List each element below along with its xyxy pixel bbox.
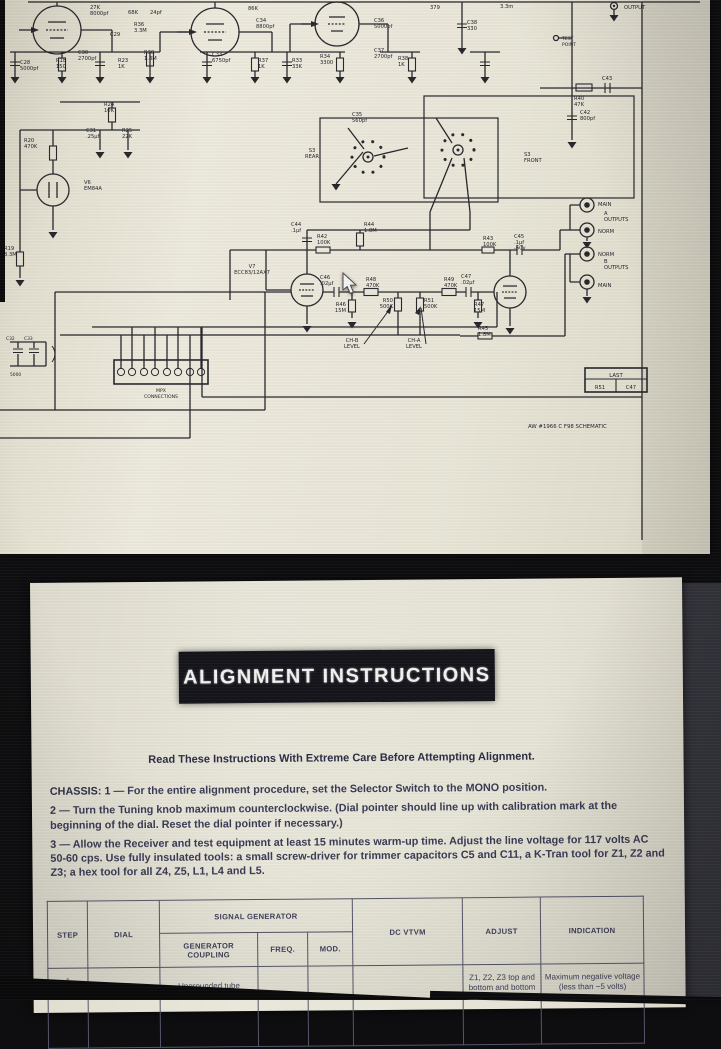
paragraph-lead: CHASSIS: 1 — (50, 785, 125, 798)
svg-text:AOUTPUTS: AOUTPUTS (604, 211, 628, 223)
svg-text:LAST: LAST (609, 373, 623, 379)
svg-text:CH-BLEVEL: CH-BLEVEL (344, 338, 360, 350)
col-header-mod: MOD. (308, 932, 353, 966)
svg-text:BOUTPUTS: BOUTPUTS (604, 259, 628, 271)
svg-text:V7ECC83/12AX7: V7ECC83/12AX7 (234, 264, 270, 276)
svg-text:R4715M: R4715M (474, 302, 485, 314)
svg-text:3.3m: 3.3m (500, 4, 513, 10)
screen: { "schematic_page": { "footer": "AW #196… (0, 0, 721, 1000)
svg-text:5000: 5000 (10, 372, 21, 378)
instruction-paragraphs: CHASSIS: 1 — For the entire alignment pr… (50, 779, 667, 885)
schematic-wires (0, 2, 700, 540)
alignment-table: STEP DIAL SIGNAL GENERATOR DC VTVM ADJUS… (47, 896, 645, 1049)
svg-text:R51: R51 (595, 385, 605, 391)
ground-symbols (11, 15, 619, 335)
svg-text:NORM: NORM (598, 252, 614, 258)
subtitle: Read These Instructions With Extreme Car… (32, 750, 652, 767)
page-title: ALIGNMENT INSTRUCTIONS (183, 663, 491, 689)
svg-text:C46.02µf: C46.02µf (320, 275, 334, 287)
svg-text:C336750pf: C336750pf (212, 52, 230, 64)
svg-text:C45.1µf-60v: C45.1µf-60v (514, 234, 526, 252)
svg-text:C43: C43 (602, 76, 612, 82)
svg-text:C33: C33 (24, 336, 33, 342)
paragraph-3: 3 — Allow the Receiver and test equipmen… (50, 832, 666, 880)
paragraph-text: For the entire alignment procedure, set … (127, 781, 547, 797)
svg-text:R381K: R381K (398, 56, 408, 68)
cell-generator-coupling: Ungrounded tube (160, 967, 259, 1048)
svg-text:S3REAR: S3REAR (305, 148, 319, 160)
svg-text:86K: 86K (248, 6, 259, 12)
svg-text:R49470K: R49470K (444, 277, 458, 289)
svg-text:R451.8M: R451.8M (478, 326, 491, 338)
svg-text:C372700pf: C372700pf (374, 48, 392, 60)
instructions-page: ALIGNMENT INSTRUCTIONS Read These Instru… (30, 577, 686, 1013)
cell-dc-vtvm (353, 965, 464, 1046)
svg-text:68K: 68K (128, 10, 139, 16)
mouse-cursor-icon (342, 272, 359, 301)
cell-freq (258, 966, 309, 1046)
svg-text:C44.1µf: C44.1µf (291, 222, 302, 234)
svg-text:R343300: R343300 (320, 54, 333, 66)
paragraph-lead: 3 — (50, 838, 70, 850)
svg-text:C29: C29 (110, 32, 120, 38)
paragraph-chassis-1: CHASSIS: 1 — For the entire alignment pr… (50, 779, 666, 799)
svg-text:R363.3M: R363.3M (134, 22, 147, 34)
svg-text:MPXCONNECTIONS: MPXCONNECTIONS (144, 388, 178, 400)
mpx-connector (114, 360, 208, 384)
svg-text:R42100K: R42100K (317, 234, 331, 246)
col-header-step: STEP (47, 901, 88, 968)
col-header-freq: FREQ. (258, 932, 308, 966)
svg-text:R4047K: R4047K (574, 96, 585, 108)
svg-text:R2410K: R2410K (104, 102, 115, 114)
paragraph-2: 2 — Turn the Tuning knob maximum counter… (50, 799, 666, 833)
cell-indication: Maximum negative voltage (less than −5 v… (541, 963, 645, 1044)
col-header-indication: INDICATION (540, 896, 644, 964)
svg-text:R193.3M: R193.3M (4, 246, 17, 258)
svg-text:C47.02µf: C47.02µf (461, 274, 475, 286)
cell-dial (88, 967, 161, 1048)
svg-text:C35560pf: C35560pf (352, 112, 367, 124)
cell-mod (308, 966, 354, 1046)
col-header-signal-generator: SIGNAL GENERATOR (159, 899, 352, 934)
svg-text:R43100K: R43100K (483, 236, 497, 248)
svg-text:MAIN: MAIN (598, 283, 612, 289)
svg-text:R231K: R231K (118, 58, 128, 70)
svg-text:R50500K: R50500K (380, 298, 394, 310)
svg-text:R51500K: R51500K (424, 298, 438, 310)
svg-text:C365000pf: C365000pf (374, 18, 392, 30)
svg-text:TESTPOINT: TESTPOINT (561, 36, 576, 48)
svg-text:24pf: 24pf (150, 10, 162, 16)
svg-text:R3333K: R3333K (292, 58, 303, 70)
svg-text:CH-ALEVEL: CH-ALEVEL (406, 338, 422, 350)
svg-text:S3FRONT: S3FRONT (524, 152, 543, 164)
paragraph-text: Allow the Receiver and test equipment at… (50, 833, 665, 879)
svg-text:MAIN: MAIN (598, 202, 612, 208)
paragraph-lead: 2 — (50, 805, 70, 817)
svg-text:C348800pf: C348800pf (256, 18, 274, 30)
col-header-dial: DIAL (87, 900, 160, 968)
svg-text:R441.8M: R441.8M (364, 222, 377, 234)
svg-text:27K8000pf: 27K8000pf (90, 5, 108, 17)
svg-text:C47: C47 (626, 385, 636, 391)
svg-text:C38330: C38330 (467, 20, 477, 32)
svg-text:R18150: R18150 (56, 58, 66, 70)
svg-text:C285000pf: C285000pf (20, 60, 38, 72)
cell-adjust: Z1, Z2, Z3 top and bottom and bottom Z4 (463, 964, 542, 1045)
svg-text:R20470K: R20470K (24, 138, 38, 150)
col-header-adjust: ADJUST (462, 897, 541, 965)
paragraph-text: Turn the Tuning knob maximum countercloc… (50, 800, 617, 831)
svg-text:AW #1966 C F98 SCHEMATIC: AW #1966 C F98 SCHEMATIC (528, 424, 607, 430)
svg-text:C32: C32 (6, 336, 15, 342)
svg-text:R4615M: R4615M (335, 302, 346, 314)
svg-text:R371K: R371K (258, 58, 268, 70)
desk-background (682, 583, 721, 1000)
svg-text:379: 379 (430, 5, 440, 11)
col-header-generator-coupling: GENERATOR COUPLING (160, 933, 258, 968)
svg-text:NORM: NORM (598, 229, 614, 235)
title-banner: ALIGNMENT INSTRUCTIONS (179, 649, 495, 704)
svg-text:C42800pf: C42800pf (580, 110, 595, 122)
svg-text:R2522K: R2522K (122, 128, 133, 140)
svg-text:V6EM84A: V6EM84A (84, 180, 102, 192)
svg-text:R48470K: R48470K (366, 277, 380, 289)
col-header-dc-vtvm: DC VTVM (352, 898, 463, 966)
